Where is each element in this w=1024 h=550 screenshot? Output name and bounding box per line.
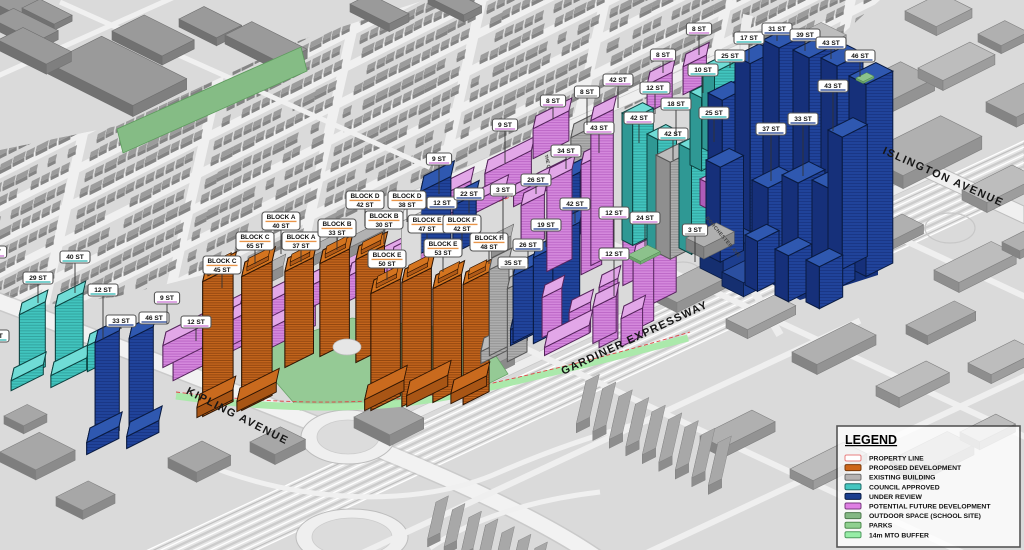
svg-text:31 ST: 31 ST bbox=[768, 26, 786, 33]
svg-text:PROPERTY LINE: PROPERTY LINE bbox=[869, 456, 924, 463]
svg-text:17 ST: 17 ST bbox=[740, 35, 758, 42]
svg-text:OUTDOOR SPACE (SCHOOL SITE): OUTDOOR SPACE (SCHOOL SITE) bbox=[869, 513, 981, 520]
svg-text:POTENTIAL FUTURE DEVELOPMENT: POTENTIAL FUTURE DEVELOPMENT bbox=[869, 504, 991, 511]
svg-text:35 ST: 35 ST bbox=[504, 260, 522, 267]
svg-text:43 ST: 43 ST bbox=[822, 40, 840, 47]
svg-text:8 ST: 8 ST bbox=[580, 89, 594, 96]
svg-text:BLOCK E: BLOCK E bbox=[429, 241, 458, 248]
svg-text:BLOCK D: BLOCK D bbox=[350, 193, 379, 200]
svg-text:EXISTING BUILDING: EXISTING BUILDING bbox=[869, 475, 935, 482]
svg-text:18 ST: 18 ST bbox=[667, 101, 685, 108]
svg-text:14m MTO BUFFER: 14m MTO BUFFER bbox=[869, 532, 929, 539]
svg-text:8 ST: 8 ST bbox=[546, 98, 560, 105]
svg-text:12 ST: 12 ST bbox=[94, 287, 112, 294]
svg-text:29 ST: 29 ST bbox=[29, 275, 47, 282]
svg-text:12 ST: 12 ST bbox=[605, 210, 623, 217]
svg-text:3 ST: 3 ST bbox=[496, 187, 510, 194]
svg-text:43 ST: 43 ST bbox=[590, 125, 608, 132]
svg-text:38 ST: 38 ST bbox=[398, 202, 415, 209]
svg-text:12 ST: 12 ST bbox=[433, 200, 451, 207]
svg-text:12 ST: 12 ST bbox=[187, 319, 205, 326]
svg-text:26 ST: 26 ST bbox=[519, 242, 537, 249]
svg-text:65 ST: 65 ST bbox=[246, 243, 263, 250]
svg-text:9 ST: 9 ST bbox=[160, 295, 174, 302]
svg-text:42 ST: 42 ST bbox=[356, 202, 373, 209]
svg-text:22 ST: 22 ST bbox=[460, 191, 478, 198]
svg-text:12 ST: 12 ST bbox=[605, 251, 623, 258]
svg-text:12 ST: 12 ST bbox=[646, 85, 664, 92]
svg-text:9 ST: 9 ST bbox=[432, 156, 446, 163]
svg-text:43 ST: 43 ST bbox=[824, 83, 842, 90]
svg-text:37 ST: 37 ST bbox=[762, 126, 780, 133]
svg-text:34 ST: 34 ST bbox=[557, 148, 575, 155]
svg-text:BLOCK E: BLOCK E bbox=[373, 252, 402, 259]
svg-text:3 ST: 3 ST bbox=[688, 227, 702, 234]
svg-text:50 ST: 50 ST bbox=[378, 261, 395, 268]
svg-text:UNDER REVIEW: UNDER REVIEW bbox=[869, 494, 922, 501]
svg-text:8 ST: 8 ST bbox=[656, 52, 670, 59]
svg-text:35 ST: 35 ST bbox=[0, 333, 3, 340]
svg-text:COUNCIL APPROVED: COUNCIL APPROVED bbox=[869, 484, 940, 491]
svg-text:25 ST: 25 ST bbox=[721, 53, 739, 60]
svg-text:33 ST: 33 ST bbox=[112, 318, 130, 325]
svg-text:30 ST: 30 ST bbox=[375, 222, 392, 229]
svg-text:46 ST: 46 ST bbox=[145, 315, 163, 322]
svg-text:42 ST: 42 ST bbox=[453, 226, 470, 233]
svg-text:BLOCK C: BLOCK C bbox=[207, 258, 236, 265]
svg-text:33 ST: 33 ST bbox=[328, 230, 345, 237]
svg-text:42 ST: 42 ST bbox=[630, 115, 648, 122]
svg-text:19 ST: 19 ST bbox=[537, 222, 555, 229]
svg-text:26 ST: 26 ST bbox=[527, 177, 545, 184]
svg-text:BLOCK D: BLOCK D bbox=[392, 193, 421, 200]
svg-text:45 ST: 45 ST bbox=[213, 267, 230, 274]
svg-text:42 ST: 42 ST bbox=[609, 77, 627, 84]
svg-text:47 ST: 47 ST bbox=[418, 226, 435, 233]
svg-text:9 ST: 9 ST bbox=[498, 122, 512, 129]
svg-text:BLOCK B: BLOCK B bbox=[322, 221, 351, 228]
svg-text:42 ST: 42 ST bbox=[664, 131, 682, 138]
svg-text:9 ST: 9 ST bbox=[0, 249, 1, 256]
svg-text:PARKS: PARKS bbox=[869, 523, 893, 530]
svg-text:LEGEND: LEGEND bbox=[845, 433, 897, 447]
svg-text:46 ST: 46 ST bbox=[851, 53, 869, 60]
svg-text:53 ST: 53 ST bbox=[434, 250, 451, 257]
svg-text:BLOCK E: BLOCK E bbox=[413, 217, 442, 224]
svg-text:39 ST: 39 ST bbox=[796, 32, 814, 39]
svg-text:40 ST: 40 ST bbox=[272, 223, 289, 230]
svg-text:BLOCK B: BLOCK B bbox=[369, 213, 398, 220]
svg-text:40 ST: 40 ST bbox=[66, 254, 84, 261]
svg-text:25 ST: 25 ST bbox=[705, 110, 723, 117]
svg-text:PROPOSED DEVELOPMENT: PROPOSED DEVELOPMENT bbox=[869, 465, 962, 472]
svg-text:48 ST: 48 ST bbox=[480, 244, 497, 251]
svg-text:33 ST: 33 ST bbox=[794, 116, 812, 123]
svg-text:BLOCK F: BLOCK F bbox=[448, 217, 476, 224]
svg-text:8 ST: 8 ST bbox=[692, 26, 706, 33]
svg-text:BLOCK A: BLOCK A bbox=[287, 234, 316, 241]
svg-text:42 ST: 42 ST bbox=[566, 201, 584, 208]
svg-text:10 ST: 10 ST bbox=[694, 67, 712, 74]
svg-text:BLOCK F: BLOCK F bbox=[475, 235, 503, 242]
svg-text:37 ST: 37 ST bbox=[292, 243, 309, 250]
svg-text:BLOCK C: BLOCK C bbox=[240, 234, 269, 241]
svg-text:BLOCK A: BLOCK A bbox=[267, 214, 296, 221]
svg-text:24 ST: 24 ST bbox=[636, 215, 654, 222]
